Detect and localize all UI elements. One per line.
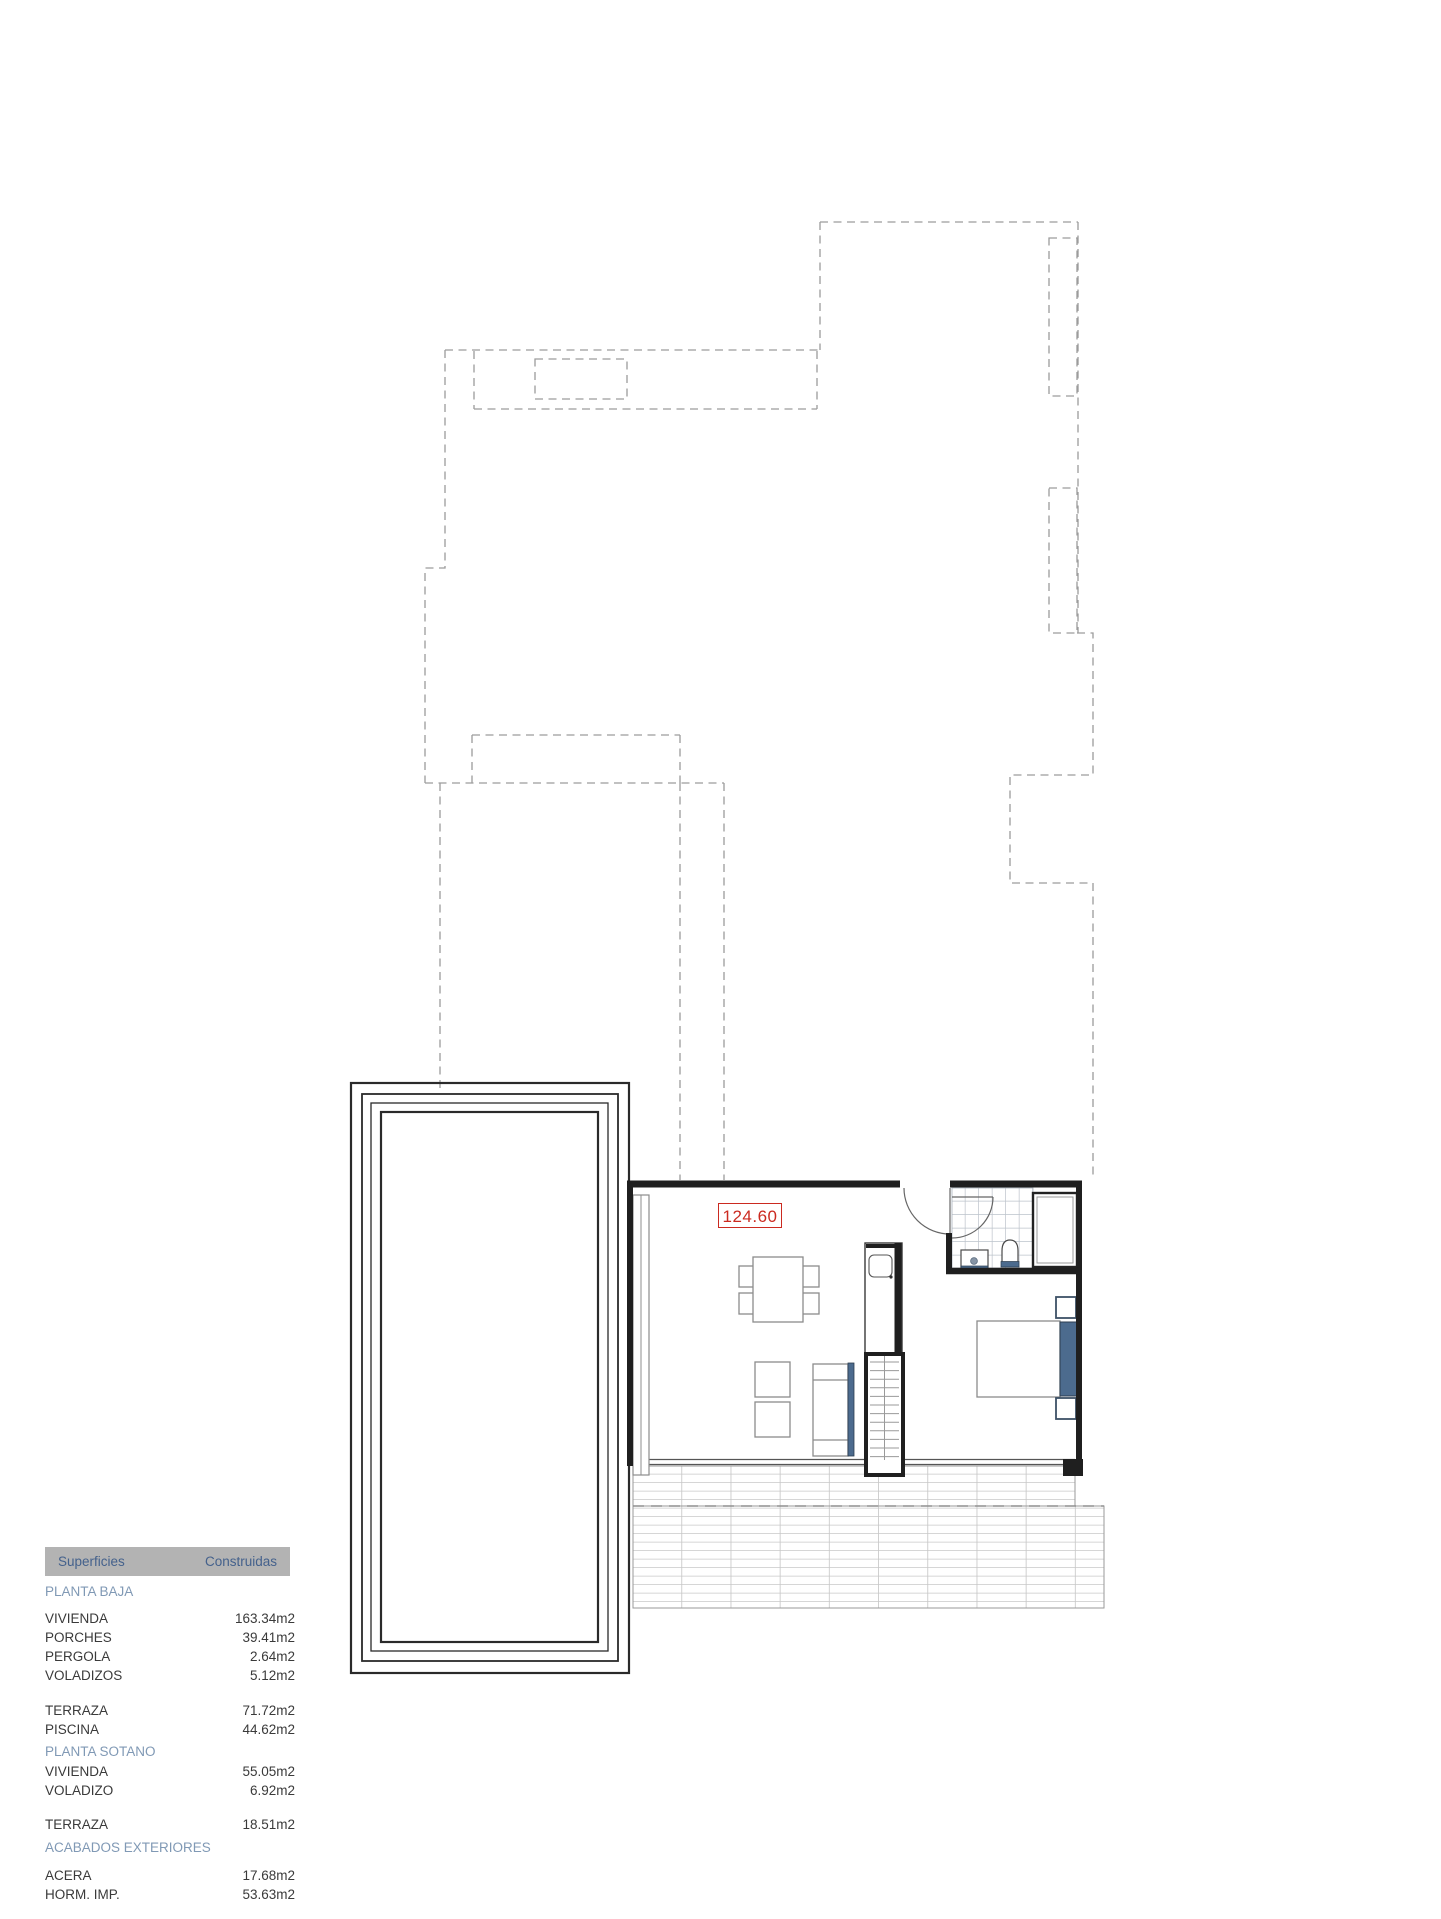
row-label: PORCHES	[45, 1628, 112, 1647]
table-row: VOLADIZO 6.92m2	[45, 1781, 295, 1800]
rows-terraza-sotano: TERRAZA 18.51m2	[45, 1815, 295, 1834]
row-label: TERRAZA	[45, 1815, 108, 1834]
row-label: VIVIENDA	[45, 1762, 108, 1781]
row-label: ACERA	[45, 1866, 92, 1885]
toilet-base	[1001, 1262, 1019, 1268]
coffee-table	[755, 1362, 790, 1397]
row-value: 17.68m2	[242, 1866, 295, 1885]
areas-table: Superficies Construidas PLANTA BAJA VIVI…	[45, 1547, 295, 1904]
row-value: 53.63m2	[242, 1885, 295, 1904]
glass-wall	[627, 1460, 1075, 1465]
table-row: ACERA 17.68m2	[45, 1866, 295, 1885]
section-title-planta-sotano: PLANTA SOTANO	[45, 1744, 295, 1760]
setback-box	[535, 359, 627, 399]
row-value: 39.41m2	[242, 1628, 295, 1647]
wall-step	[1063, 1459, 1083, 1476]
terrace	[633, 1466, 1104, 1608]
table-row: VIVIENDA 55.05m2	[45, 1762, 295, 1781]
table-row: VIVIENDA 163.34m2	[45, 1609, 295, 1628]
nightstand	[1056, 1297, 1076, 1318]
section-title-planta-baja: PLANTA BAJA	[45, 1584, 295, 1600]
sink	[869, 1255, 892, 1277]
area-label: 124.60	[718, 1203, 782, 1228]
section-title-acabados: ACABADOS EXTERIORES	[45, 1840, 295, 1856]
sofa	[813, 1364, 848, 1456]
parcel-boundary	[425, 222, 1093, 1180]
row-value: 5.12m2	[250, 1666, 295, 1685]
table-row: PERGOLA 2.64m2	[45, 1647, 295, 1666]
row-value: 71.72m2	[242, 1701, 295, 1720]
rows-terraza-piscina: TERRAZA 71.72m2 PISCINA 44.62m2	[45, 1701, 295, 1739]
dining-table	[753, 1257, 803, 1322]
pool	[351, 1083, 629, 1673]
rows-planta-sotano: VIVIENDA 55.05m2 VOLADIZO 6.92m2	[45, 1762, 295, 1800]
dining-set	[739, 1257, 819, 1322]
nightstand	[1056, 1398, 1076, 1419]
rows-planta-baja: VIVIENDA 163.34m2 PORCHES 39.41m2 PERGOL…	[45, 1609, 295, 1685]
porch-deck	[633, 1466, 1075, 1506]
areas-table-header: Superficies Construidas	[45, 1547, 290, 1576]
header-construidas: Construidas	[205, 1554, 277, 1569]
boundary-strip-upper	[1049, 238, 1077, 396]
row-label: VIVIENDA	[45, 1609, 108, 1628]
headboard	[1060, 1322, 1077, 1396]
header-superficies: Superficies	[58, 1554, 125, 1569]
sofa-back	[848, 1363, 854, 1456]
row-label: PISCINA	[45, 1720, 99, 1739]
floor-plan-page: 124.60 Superficies Construidas PLANTA BA…	[0, 0, 1441, 1919]
row-label: TERRAZA	[45, 1701, 108, 1720]
row-value: 18.51m2	[242, 1815, 295, 1834]
row-value: 2.64m2	[250, 1647, 295, 1666]
terrace-deck	[633, 1506, 1104, 1608]
faucet	[889, 1275, 892, 1278]
wardrobe	[1033, 1193, 1077, 1267]
row-label: VOLADIZOS	[45, 1666, 122, 1685]
row-value: 6.92m2	[250, 1781, 295, 1800]
bed-mattress	[977, 1321, 1060, 1397]
living-furniture	[755, 1362, 848, 1456]
row-value: 55.05m2	[242, 1762, 295, 1781]
stairs	[866, 1354, 903, 1475]
boundary-strip-lower	[1049, 488, 1077, 633]
row-label: VOLADIZO	[45, 1781, 113, 1800]
row-value: 44.62m2	[242, 1720, 295, 1739]
window-strip	[633, 1195, 649, 1475]
bed	[977, 1297, 1077, 1419]
washbasin-drain	[971, 1258, 978, 1265]
table-row: PISCINA 44.62m2	[45, 1720, 295, 1739]
coffee-table	[755, 1402, 790, 1437]
table-row: TERRAZA 71.72m2	[45, 1701, 295, 1720]
table-row: PORCHES 39.41m2	[45, 1628, 295, 1647]
row-value: 163.34m2	[235, 1609, 295, 1628]
row-label: PERGOLA	[45, 1647, 110, 1666]
rows-acabados: ACERA 17.68m2 HORM. IMP. 53.63m2	[45, 1866, 295, 1904]
row-label: HORM. IMP.	[45, 1885, 120, 1904]
table-row: VOLADIZOS 5.12m2	[45, 1666, 295, 1685]
table-row: TERRAZA 18.51m2	[45, 1815, 295, 1834]
table-row: HORM. IMP. 53.63m2	[45, 1885, 295, 1904]
entry-door-swing	[904, 1188, 950, 1234]
